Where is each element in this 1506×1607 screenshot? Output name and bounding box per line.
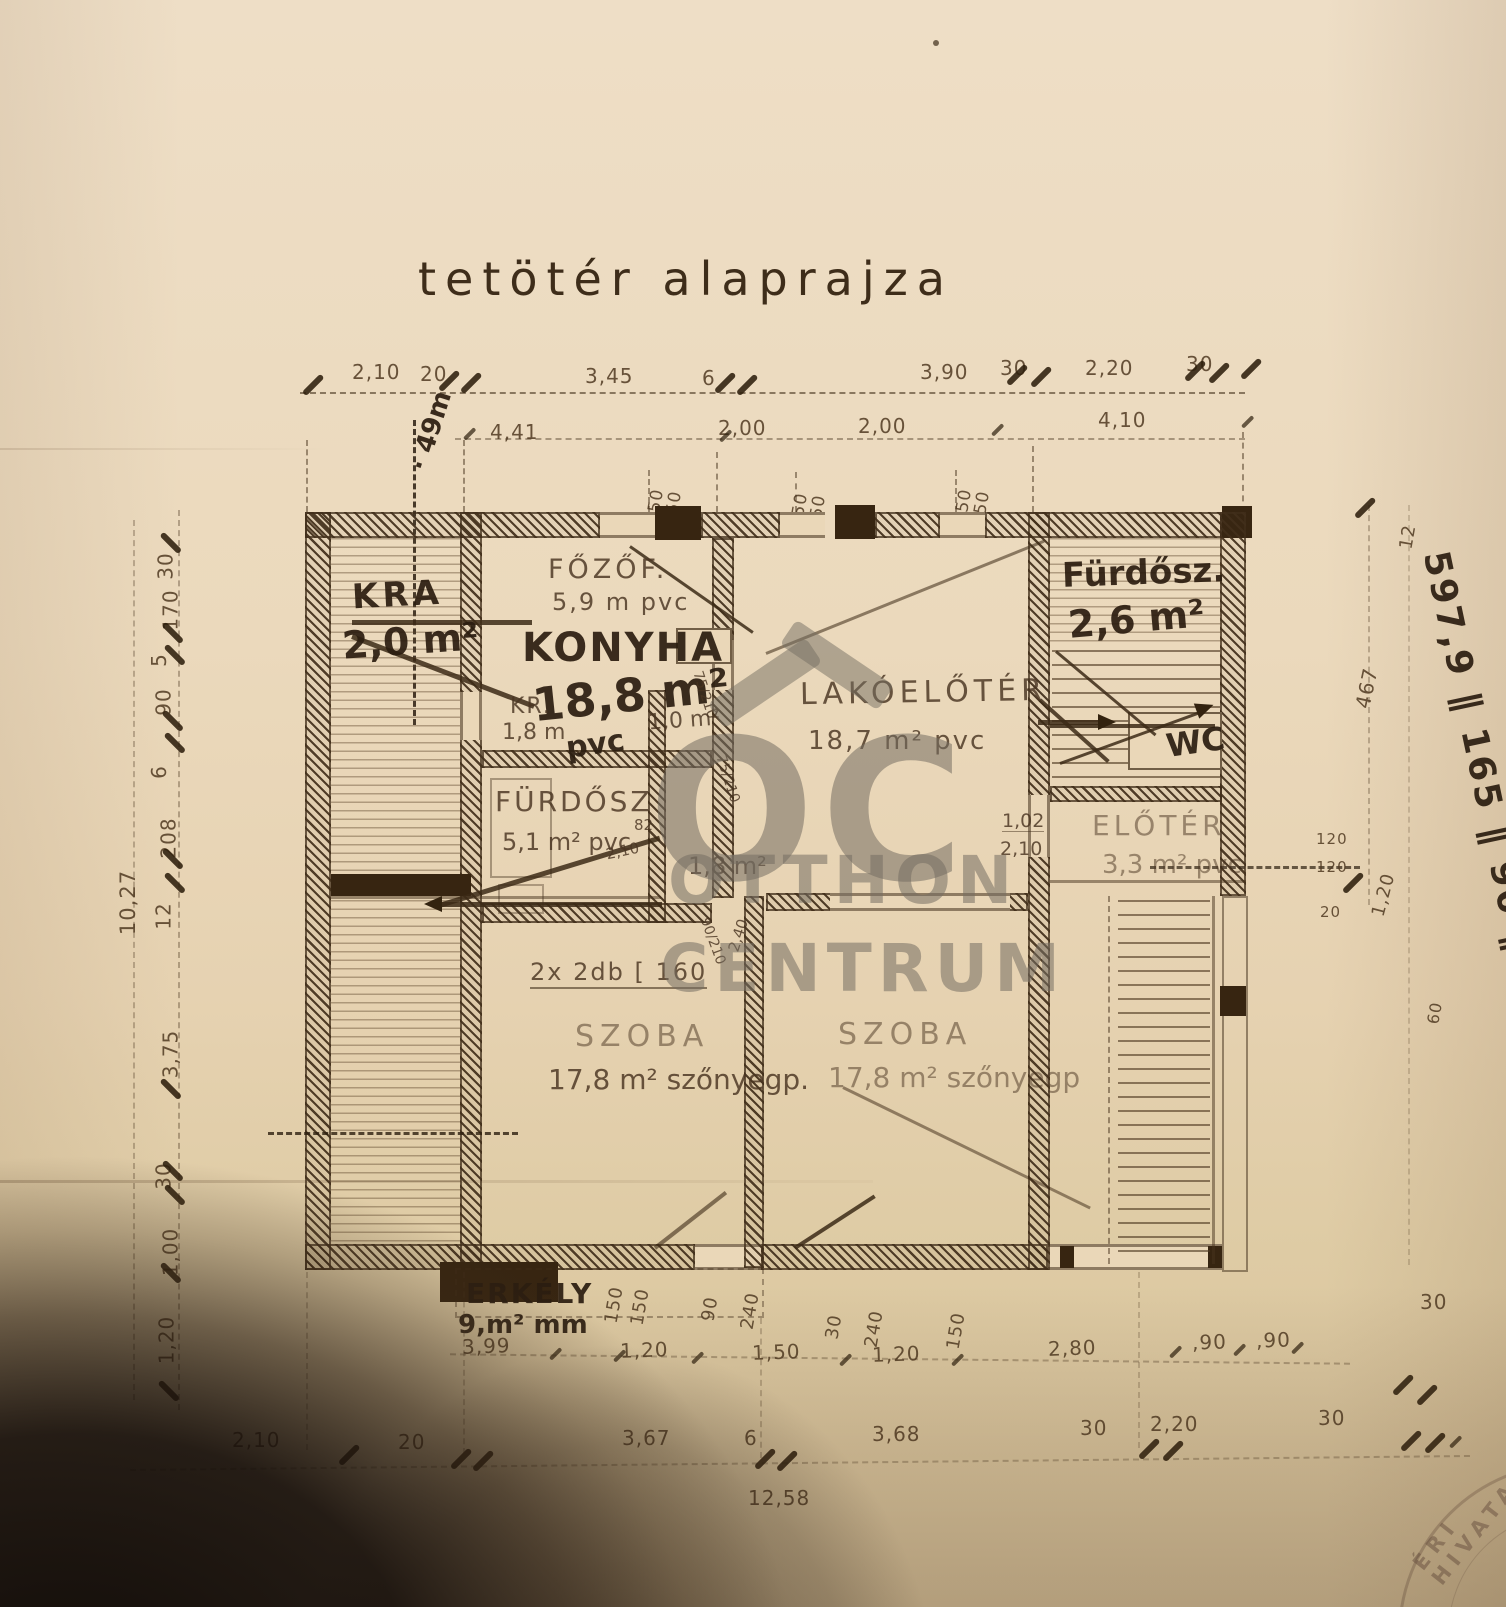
room-label: KR. [510, 696, 552, 718]
extension-line [795, 472, 797, 512]
watermark-text: CENTRUM [660, 930, 1066, 1007]
extension-line [1138, 1272, 1140, 1448]
room-floor: pvc [564, 726, 626, 764]
dim-total: 12,58 [748, 1488, 810, 1508]
wall [1050, 786, 1222, 802]
dim-tick [164, 732, 186, 754]
dim-label: 3,45 [585, 366, 634, 386]
dim-tick [1354, 497, 1376, 519]
chimney [835, 505, 875, 539]
dim-label: 3,75 [160, 1030, 180, 1079]
dim-label: 2,10 [352, 362, 401, 382]
attic-band-hatch [331, 900, 461, 1244]
paper-crease [0, 448, 331, 450]
stair-line [1212, 896, 1215, 1264]
dim-label: 1,20 [872, 1343, 921, 1365]
ink-dot [933, 40, 939, 46]
small-dim: 2,10 [605, 841, 641, 863]
dim-label: 1,20 [620, 1339, 669, 1361]
sink [498, 884, 544, 914]
dim-label: 20 [398, 1432, 425, 1452]
extension-line [955, 470, 957, 512]
dim-tick [1233, 1343, 1246, 1356]
wall-pier [655, 506, 701, 540]
extension-line [463, 1272, 465, 1454]
dim-total: 10,27 [118, 870, 139, 935]
watermark-text: OTTHON [668, 842, 1018, 919]
door-line [436, 902, 662, 907]
dim-label: 2,20 [1085, 358, 1134, 378]
dim-label: 150 [629, 1287, 653, 1327]
dim-label: 30 [823, 1313, 845, 1341]
dim-label: 4,10 [1098, 410, 1147, 430]
room-area: 17,8 m² szőnyegp. [548, 1066, 809, 1094]
floorplan-page: tetötér alaprajza 2,10 20 3,45 6 3,90 30… [0, 0, 1506, 1607]
dim-tick [1291, 1341, 1304, 1354]
dim-label: 1,20 [156, 1316, 176, 1365]
dim-label: 150 [603, 1285, 627, 1325]
dim-label: 2,10 [232, 1430, 281, 1450]
dim-label: 2,00 [858, 416, 907, 436]
stair-dash [1108, 896, 1110, 1264]
dim-tick [714, 372, 736, 394]
dim-label: 3,68 [872, 1424, 921, 1444]
stacked-dim: 1,02 [1002, 812, 1044, 832]
dim-label: 6 [744, 1428, 758, 1448]
door-swing [794, 1195, 876, 1250]
room-area: 2,0 m² [341, 617, 480, 664]
dim-label: 12 [1397, 523, 1419, 551]
extension-line [1032, 446, 1034, 512]
extension-line [716, 452, 718, 512]
dim-label: 3,67 [622, 1428, 671, 1448]
room-area: 3,3 m² pvc [1102, 852, 1242, 878]
dim-tick [1400, 1430, 1422, 1452]
dim-line [130, 1455, 1470, 1471]
extension-line [1242, 432, 1244, 512]
dim-label: 12 [154, 902, 174, 929]
extension-line [760, 1318, 762, 1458]
room-area: 2,6 m² [1067, 594, 1207, 644]
dim-tick [158, 1380, 180, 1402]
room-label: ELŐTÉR [1092, 812, 1226, 840]
dim-label: 6 [702, 368, 716, 388]
door-swing [842, 1086, 1090, 1209]
dim-tick [1416, 1384, 1438, 1406]
axis-dashdot-line [268, 1132, 518, 1135]
dim-label: 30 [1318, 1408, 1345, 1428]
window [940, 512, 985, 538]
post [1220, 986, 1246, 1016]
dim-label: 4,41 [490, 422, 539, 442]
room-label: WC [1164, 722, 1227, 762]
dim-line [455, 438, 1245, 440]
dim-tick [754, 1448, 776, 1470]
dim-label: 30 [156, 552, 176, 579]
dim-line [1408, 505, 1410, 1265]
dim-label: 150 [945, 1311, 969, 1351]
dim-tick [1392, 1374, 1414, 1396]
dim-tick [839, 1353, 852, 1366]
dim-label: 20 [1320, 905, 1341, 920]
dim-label: ,90 [1192, 1331, 1227, 1352]
dim-tick [164, 872, 186, 894]
dim-label: 60 [1425, 1001, 1445, 1026]
dim-label: 6 [149, 765, 169, 779]
room-label: ERKÉLY [466, 1280, 593, 1308]
wall [875, 512, 940, 538]
room-label: KRA [351, 576, 443, 615]
dim-tick [991, 423, 1004, 436]
extension-line [463, 440, 465, 512]
stair-treads [1118, 900, 1210, 1256]
dim-tick [1424, 1432, 1446, 1454]
dim-tick [460, 372, 482, 394]
room-area: 1,8 m [502, 722, 565, 744]
wall [305, 512, 600, 538]
railing [1222, 896, 1248, 1272]
door-opening [460, 692, 482, 740]
post [1060, 1246, 1074, 1268]
wall [305, 512, 331, 1270]
dim-tick [1240, 358, 1262, 380]
dim-label: 2,80 [1048, 1337, 1097, 1359]
dim-line [133, 520, 135, 1400]
page-title: tetötér alaprajza [418, 256, 954, 302]
dim-tick [1449, 1435, 1462, 1448]
wall [701, 512, 780, 538]
room-label: FÜRDŐSZ [495, 788, 653, 816]
room-label: SZOBA [838, 1020, 972, 1050]
wall [761, 1244, 1048, 1270]
wall-line [331, 896, 661, 899]
dim-tick [1138, 1438, 1160, 1460]
dim-label: 120 [1316, 860, 1348, 875]
window [600, 512, 655, 538]
room-area: 17,8 m² szőnyegp [828, 1064, 1080, 1092]
dim-label: 30 [1080, 1418, 1107, 1438]
dim-tick [1241, 415, 1254, 428]
dim-label: 467 [1353, 666, 1381, 710]
dim-tick [1030, 366, 1052, 388]
post [1208, 1246, 1222, 1268]
extension-line [306, 440, 308, 512]
room-label: FŐZŐF. [548, 556, 668, 583]
dim-label: 1,20 [1370, 871, 1399, 918]
room-area: 5,9 m pvc [552, 590, 689, 614]
wall [985, 512, 1222, 538]
dim-tick [1169, 1345, 1182, 1358]
dim-label: 90 [699, 1295, 721, 1323]
dim-tick [338, 1444, 360, 1466]
dim-tick [472, 1450, 494, 1472]
wall-line [1050, 880, 1246, 883]
dim-label: 30 [1420, 1292, 1447, 1312]
dim-label: 3,90 [920, 362, 969, 382]
hand-dim-scrawl: 597,9 ∥ 165 ∥ 90 ∥ [1417, 548, 1506, 956]
room-label: SZOBA [575, 1022, 709, 1052]
dim-label: ,90 [1256, 1329, 1291, 1350]
dim-label: 120 [1316, 832, 1348, 847]
dim-label: 2,20 [1150, 1414, 1199, 1434]
window [780, 512, 825, 538]
wall [1028, 512, 1050, 1270]
extension-line [306, 1272, 308, 1450]
dim-tick [776, 1450, 798, 1472]
door-arrow [424, 896, 442, 912]
dim-label: 3,99 [462, 1335, 511, 1357]
arrow-head [1098, 714, 1116, 730]
door-swing [654, 1191, 727, 1250]
dim-label: 5 [149, 653, 169, 667]
room-label: Fürdősz. [1061, 553, 1225, 593]
extension-line [648, 470, 650, 512]
wall-bar [331, 874, 471, 896]
